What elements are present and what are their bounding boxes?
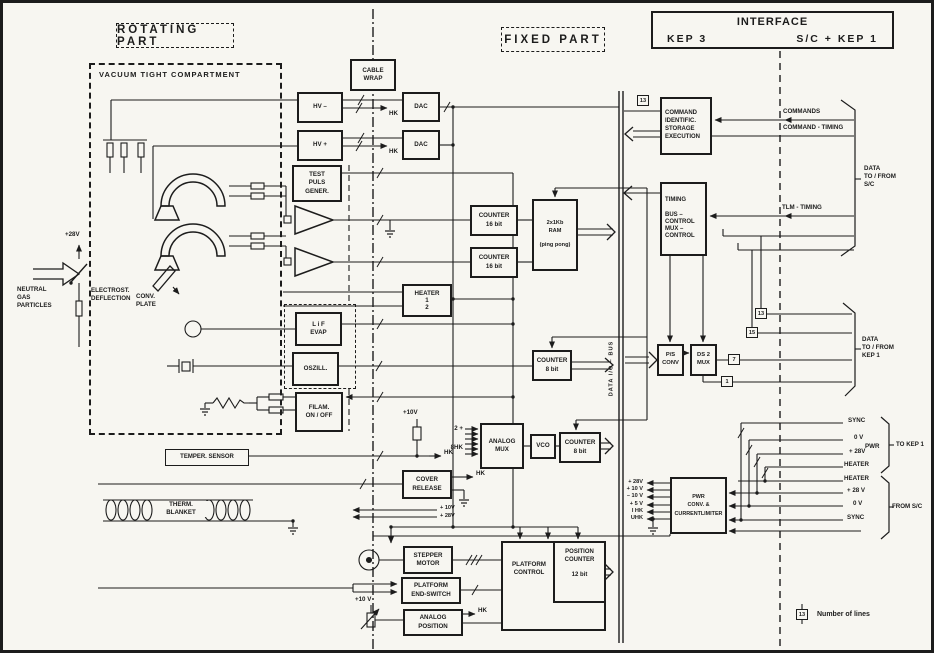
wiring-layer <box>3 3 934 653</box>
v28-from-label: + 28 V <box>847 487 865 495</box>
line-count-15: 15 <box>746 327 758 338</box>
line-count-command: 13 <box>637 95 649 106</box>
sync-from-label: SYNC <box>847 514 864 522</box>
ram-block: 2x1Kb RAM (ping pong) <box>532 199 578 271</box>
kep3-label: KEP 3 <box>667 33 707 46</box>
pwr-in-ihk-label: I HK <box>609 508 643 515</box>
v10-mux-label: +10V <box>403 409 418 417</box>
ps-conv-block: P/S CONV <box>657 344 684 376</box>
rotating-part-header: ROTATING PART <box>116 23 234 48</box>
to-kep1-label: TO KEP 1 <box>896 441 934 449</box>
diagram-canvas: ROTATING PART FIXED PART INTERFACE KEP 3… <box>0 0 934 653</box>
analog-position-block: ANALOG POSITION <box>403 609 463 636</box>
command-timing-label: COMMAND - TIMING <box>783 124 843 132</box>
pwr-in-5v-label: + 5 V <box>609 501 643 508</box>
vco-block: VCO <box>530 434 556 459</box>
ov-from-label: 0 V <box>853 500 862 508</box>
sc-kep1-label: S/C + KEP 1 <box>796 33 878 46</box>
conv-plate-label: CONV. PLATE <box>136 293 176 309</box>
rotating-part-title: ROTATING PART <box>117 24 233 48</box>
fixed-part-title: FIXED PART <box>504 34 602 46</box>
hk-cover-label: HK <box>476 470 485 478</box>
pwr-in-uhk-label: UHK <box>609 515 643 522</box>
dac-top-block: DAC <box>402 92 440 122</box>
ov-to-label: 0 V <box>854 434 863 442</box>
hk-position-label: HK <box>478 607 487 615</box>
oszill-block: OSZILL. <box>292 352 339 386</box>
neutral-gas-label: NEUTRAL GAS PARTICLES <box>17 286 71 309</box>
legend-text: Number of lines <box>817 611 870 620</box>
position-counter-label: POSITION COUNTER 12 bit <box>555 549 604 579</box>
cover-release-block: COVER RELEASE <box>402 470 452 499</box>
dac-bottom-block: DAC <box>402 130 440 160</box>
filam-block: FILAM. ON / OFF <box>295 392 343 432</box>
ds2-mux-block: DS 2 MUX <box>690 344 717 376</box>
counter16-top-block: COUNTER 16 bit <box>470 205 518 236</box>
position-counter-cell: POSITION COUNTER 12 bit <box>553 543 604 603</box>
therm-blanket-label: THERM. BLANKET <box>153 501 209 517</box>
hv-minus-block: HV – <box>297 92 343 123</box>
vacuum-compartment-label: VACUUM TIGHT COMPARTMENT <box>99 70 241 79</box>
hk-hv-minus-label: HK <box>389 110 398 118</box>
pwr-in-10v-label: + 10 V <box>609 486 643 493</box>
platform-control-block: PLATFORM CONTROL POSITION COUNTER 12 bit <box>501 541 606 631</box>
heater-to-label: HEATER <box>844 461 869 469</box>
pwr-group-label: PWR <box>865 443 879 451</box>
heater-block: HEATER 1 2 <box>402 284 452 317</box>
v10-pot-label: +10 V <box>355 596 371 604</box>
pwr-conv-block: PWR CONV. & CURRENTLIMITER <box>670 477 727 534</box>
sync-to-label: SYNC <box>848 417 865 425</box>
pwr-in-28v-label: + 28V <box>609 479 643 486</box>
data-io-bus-label: DATA I/O – BUS <box>609 322 616 414</box>
data-sc-label: DATA TO / FROM S/C <box>864 165 924 188</box>
v28-deflection-label: +28V <box>65 231 80 239</box>
cable-wrap-block: CABLE WRAP <box>350 59 396 91</box>
v10-line-label: + 10V <box>440 505 455 512</box>
counter8-mid-block: COUNTER 8 bit <box>532 350 572 381</box>
v28-to-label: + 28V <box>849 448 865 456</box>
timing-block: TIMING BUS – CONTROL MUX – CONTROL <box>660 182 707 256</box>
temper-sensor-block: TEMPER. SENSOR <box>165 449 249 466</box>
line-count-7: 7 <box>728 354 740 365</box>
interface-header: INTERFACE KEP 3 S/C + KEP 1 <box>651 11 894 49</box>
hv-plus-block: HV + <box>297 130 343 161</box>
analog-mux-block: ANALOG MUX <box>480 423 524 469</box>
platform-end-switch-block: PLATFORM END-SWITCH <box>401 577 461 604</box>
stepper-motor-block: STEPPER MOTOR <box>403 546 453 574</box>
fixed-part-header: FIXED PART <box>501 27 605 52</box>
mux-input-bottom-label: 8HK <box>437 444 463 452</box>
v28-line-label: + 28V <box>440 513 455 520</box>
line-count-13: 13 <box>755 308 767 319</box>
hk-hv-plus-label: HK <box>389 148 398 156</box>
data-kep1-label: DATA TO / FROM KEP 1 <box>862 336 926 359</box>
command-ident-block: COMMAND IDENTIFIC. STORAGE EXECUTION <box>660 97 712 155</box>
tlm-timing-label: TLM - TIMING <box>782 204 822 212</box>
line-count-1: 1 <box>721 376 733 387</box>
commands-label: COMMANDS <box>783 108 820 116</box>
lif-evap-block: L i F EVAP <box>295 312 342 346</box>
platform-control-label: PLATFORM CONTROL <box>503 561 555 577</box>
pwr-in-neg10v-label: – 10 V <box>609 493 643 500</box>
mux-input-top-label: 2 + <box>437 425 463 433</box>
counter8-low-block: COUNTER 8 bit <box>559 432 601 463</box>
counter16-bottom-block: COUNTER 16 bit <box>470 247 518 278</box>
heater-from-label: HEATER <box>844 475 869 483</box>
interface-title: INTERFACE <box>653 16 892 30</box>
test-puls-gener-block: TEST PULS GENER. <box>292 165 342 202</box>
from-sc-label: FROM S/C <box>892 503 934 511</box>
legend-number-box: 13 <box>796 609 808 620</box>
